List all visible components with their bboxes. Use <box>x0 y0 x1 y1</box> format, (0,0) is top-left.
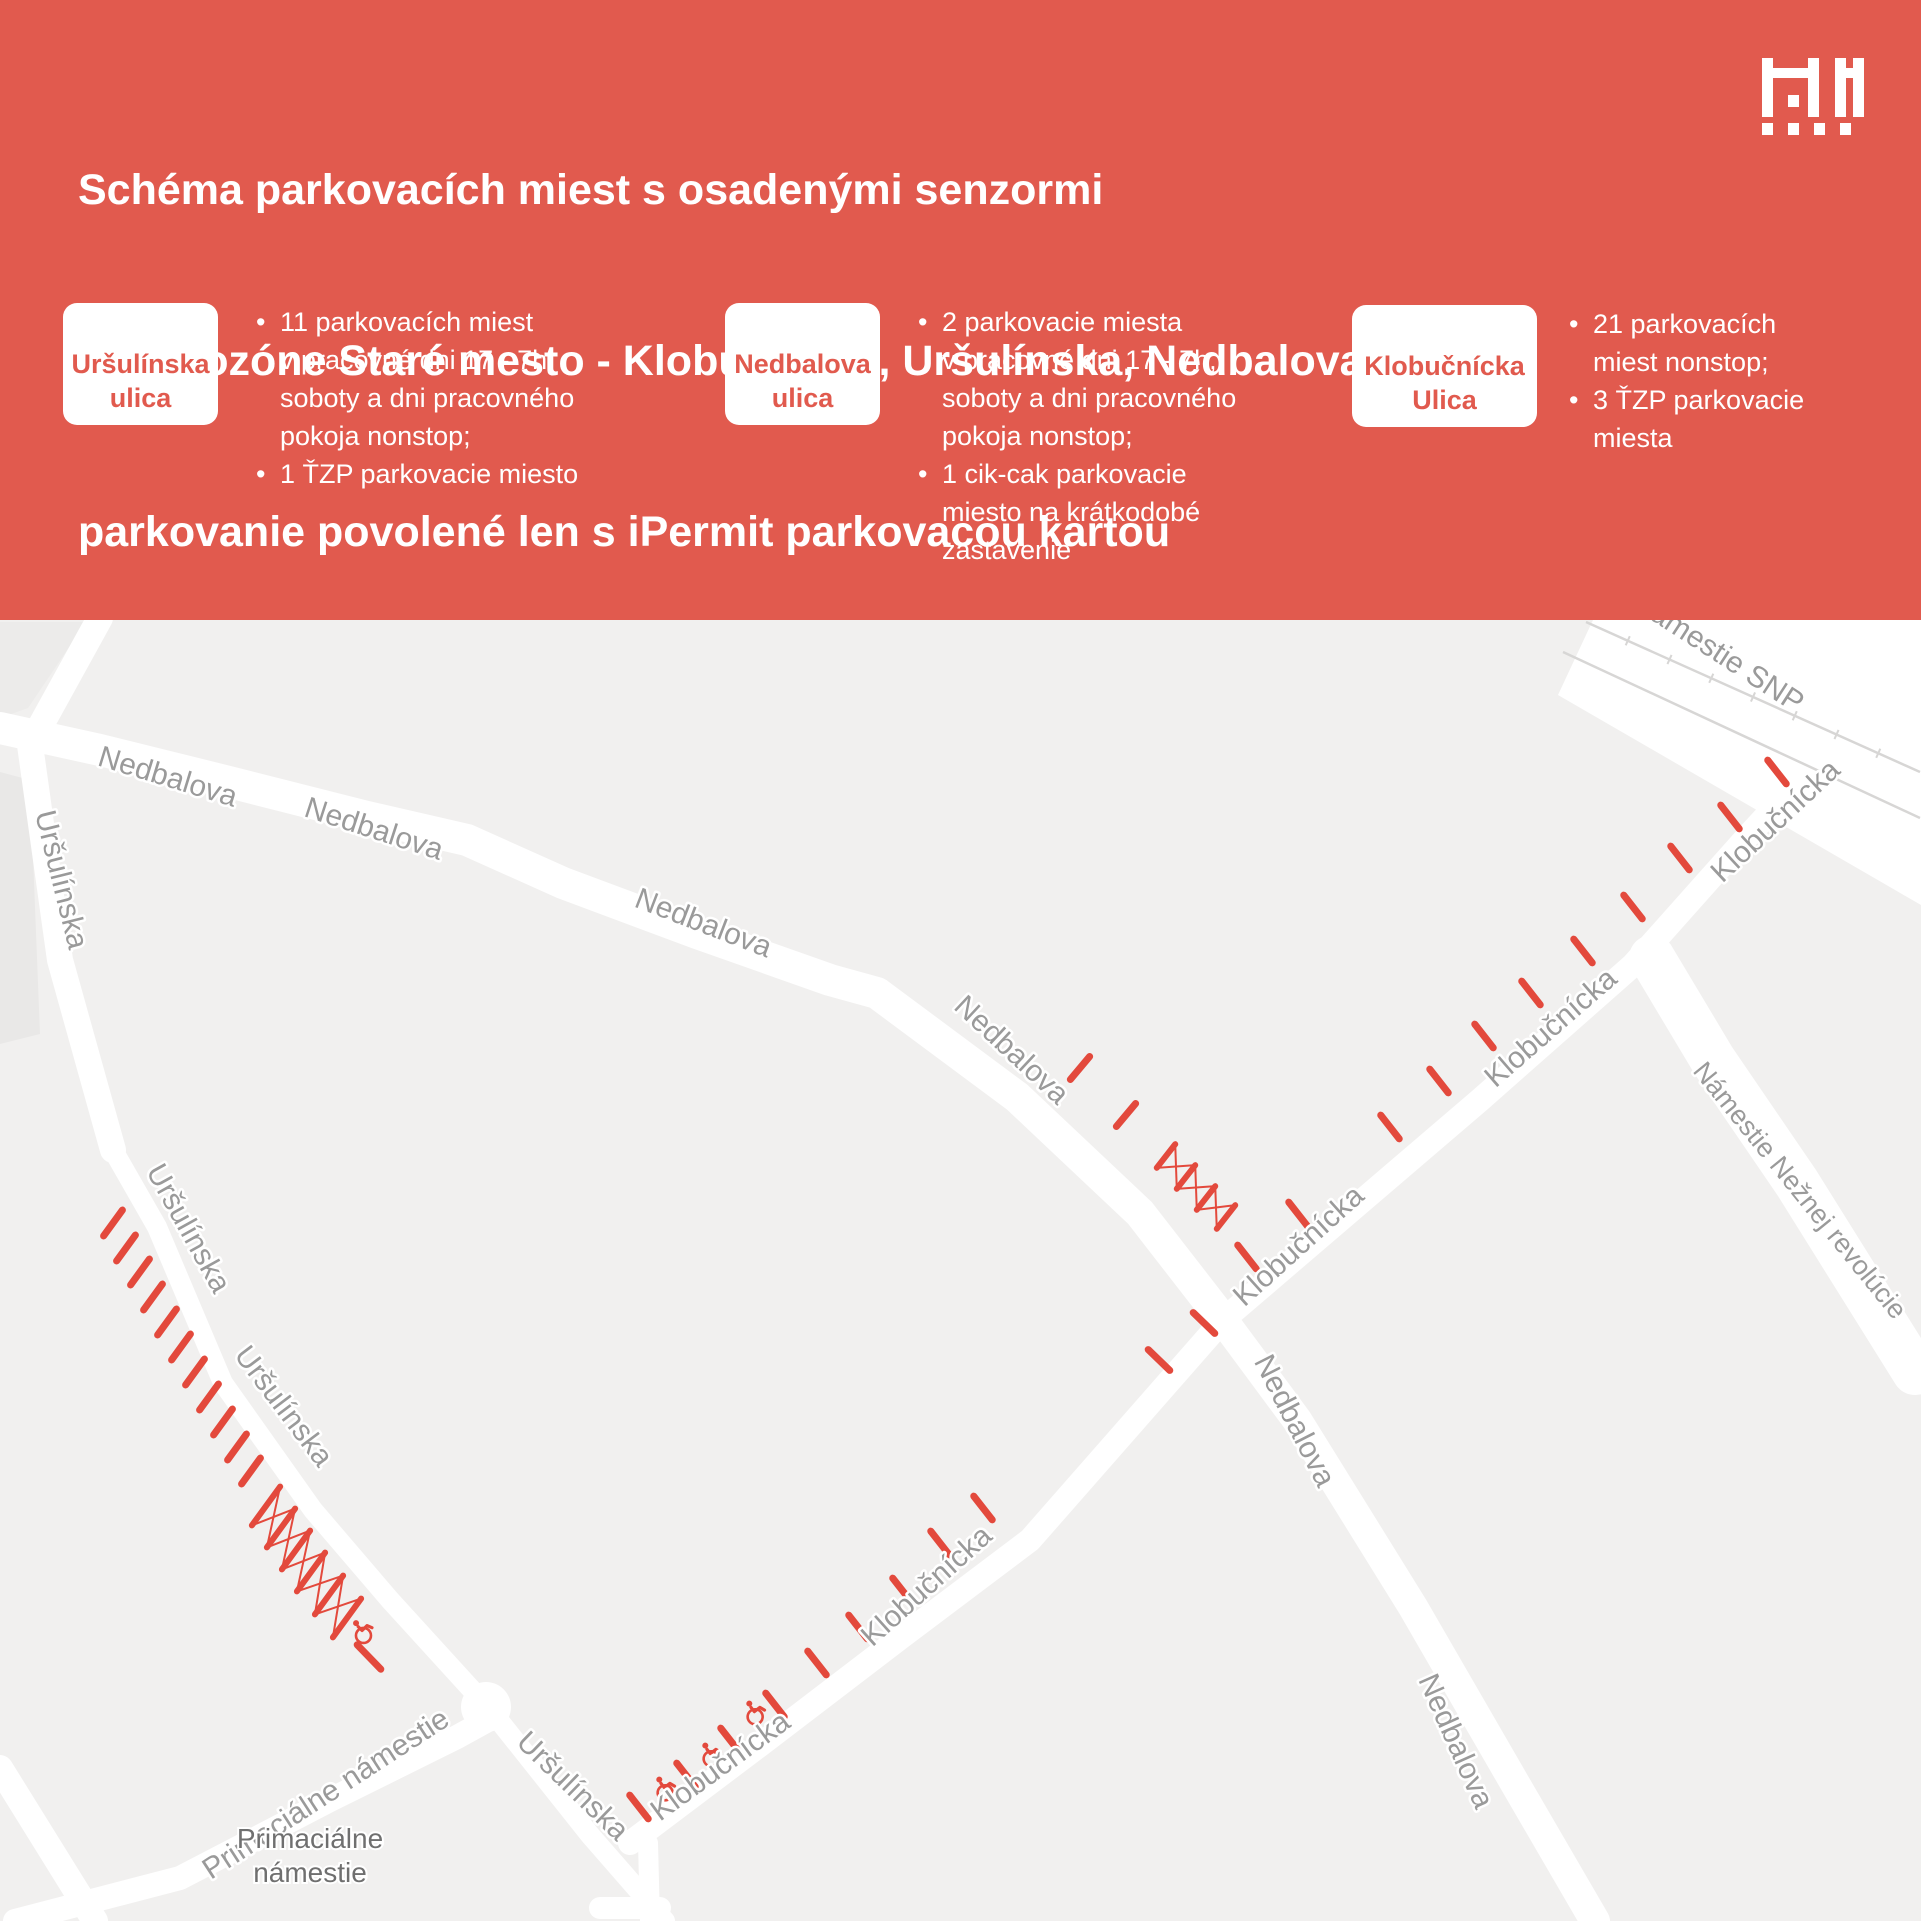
map-background <box>0 620 1921 1921</box>
map-svg: NedbalovaNedbalovaNedbalovaNedbalovaNedb… <box>0 620 1921 1921</box>
parking-info-item: 1 cik-cak parkovacie miesto na krátkodob… <box>918 455 1236 569</box>
legend-group-klobucnicka: Klobučnícka Ulica 21 parkovacích miest n… <box>1352 305 1804 457</box>
junction-bulge <box>461 1682 511 1732</box>
street-badge-nedbalova: Nedbalova ulica <box>725 303 880 425</box>
legend-group-nedbalova: Nedbalova ulica 2 parkovacie miesta v pr… <box>725 303 1236 569</box>
parking-info-list-ursulinska: 11 parkovacích miest v pracovné dni 17 -… <box>256 303 578 493</box>
parking-info-item: 11 parkovacích miest v pracovné dni 17 -… <box>256 303 578 455</box>
title-line-1: Schéma parkovacích miest s osadenými sen… <box>78 162 1364 219</box>
street-badge-klobucnicka: Klobučnícka Ulica <box>1352 305 1537 427</box>
street-badge-label: Klobučnícka Ulica <box>1364 351 1525 415</box>
parking-info-list-klobucnicka: 21 parkovacích miest nonstop;3 ŤZP parko… <box>1569 305 1804 457</box>
parking-info-list-nedbalova: 2 parkovacie miesta v pracovné dni 17 - … <box>918 303 1236 569</box>
parking-info-item: 2 parkovacie miesta v pracovné dni 17 - … <box>918 303 1236 455</box>
place-label: Primaciálne <box>237 1823 383 1854</box>
street-badge-ursulinska: Uršulínska ulica <box>63 303 218 425</box>
legend-group-ursulinska: Uršulínska ulica 11 parkovacích miest v … <box>63 303 578 493</box>
parking-info-item: 3 ŤZP parkovacie miesta <box>1569 381 1804 457</box>
place-label: námestie <box>253 1857 367 1888</box>
parking-info-item: 21 parkovacích miest nonstop; <box>1569 305 1804 381</box>
parking-info-item: 1 ŤZP parkovacie miesto <box>256 455 578 493</box>
bratislava-logo-icon <box>1752 47 1870 148</box>
street-badge-label: Nedbalova ulica <box>734 349 871 413</box>
header-banner: Schéma parkovacích miest s osadenými sen… <box>0 0 1921 620</box>
street-badge-label: Uršulínska ulica <box>71 349 209 413</box>
